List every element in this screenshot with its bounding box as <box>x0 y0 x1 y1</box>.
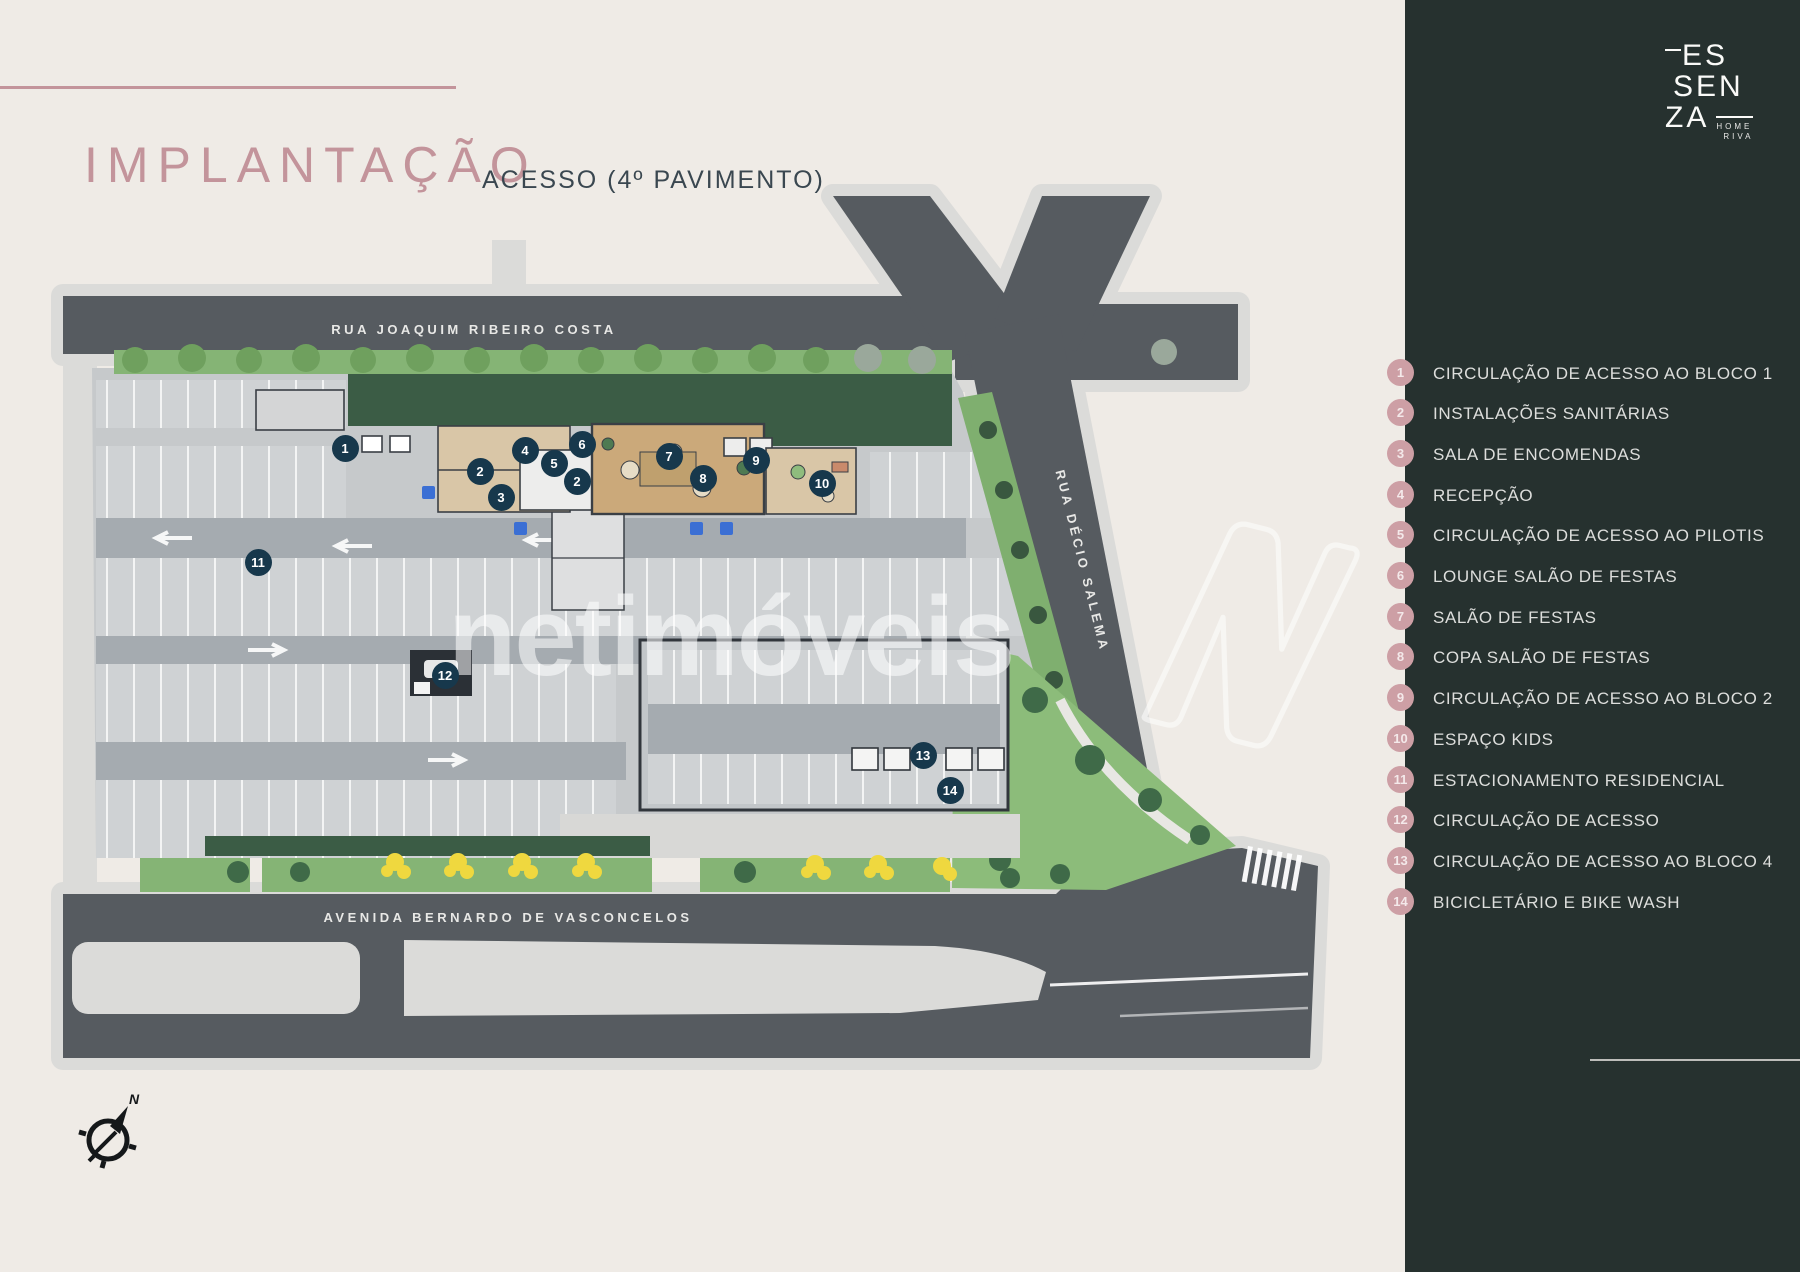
street-label-bottom: AVENIDA BERNARDO DE VASCONCELOS <box>323 910 692 925</box>
svg-text:N: N <box>129 1092 140 1107</box>
legend-badge: 9 <box>1387 684 1414 711</box>
legend-badge: 5 <box>1387 521 1414 548</box>
logo-dash-icon <box>1665 49 1681 51</box>
legend-label: CIRCULAÇÃO DE ACESSO AO BLOCO 1 <box>1433 364 1773 384</box>
netimoveis-watermark: netimóveis <box>448 572 1013 701</box>
legend-item-12: 12CIRCULAÇÃO DE ACESSO <box>1405 806 1800 833</box>
legend-badge: 11 <box>1387 766 1414 793</box>
legend-label: SALÃO DE FESTAS <box>1433 608 1597 628</box>
legend-badge: 3 <box>1387 440 1414 467</box>
legend-item-3: 3SALA DE ENCOMENDAS <box>1405 440 1800 467</box>
legend-label: CIRCULAÇÃO DE ACESSO AO PILOTIS <box>1433 526 1764 546</box>
legend-item-10: 10ESPAÇO KIDS <box>1405 725 1800 752</box>
legend-label: INSTALAÇÕES SANITÁRIAS <box>1433 404 1670 424</box>
plan-marker-9: 9 <box>743 447 770 474</box>
plan-marker-2: 2 <box>467 458 494 485</box>
legend-item-5: 5CIRCULAÇÃO DE ACESSO AO PILOTIS <box>1405 521 1800 548</box>
legend-label: ESTACIONAMENTO RESIDENCIAL <box>1433 771 1725 791</box>
legend-item-7: 7SALÃO DE FESTAS <box>1405 603 1800 630</box>
brand-logo: ES SEN ZA HOME RIVA <box>1655 40 1753 142</box>
plan-marker-12: 12 <box>432 662 459 689</box>
plan-marker-11: 11 <box>245 549 272 576</box>
legend-label: SALA DE ENCOMENDAS <box>1433 445 1641 465</box>
compass-north-icon: N <box>66 1092 156 1177</box>
legend-item-14: 14BICICLETÁRIO E BIKE WASH <box>1405 888 1800 915</box>
legend-badge: 12 <box>1387 806 1414 833</box>
legend-item-11: 11ESTACIONAMENTO RESIDENCIAL <box>1405 766 1800 793</box>
legend-label: ESPAÇO KIDS <box>1433 730 1554 750</box>
legend-item-6: 6LOUNGE SALÃO DE FESTAS <box>1405 562 1800 589</box>
legend-label: CIRCULAÇÃO DE ACESSO AO BLOCO 2 <box>1433 689 1773 709</box>
plan-marker-14: 14 <box>937 777 964 804</box>
legend-badge: 14 <box>1387 888 1414 915</box>
plan-marker-7: 7 <box>656 443 683 470</box>
legend-item-2: 2INSTALAÇÕES SANITÁRIAS <box>1405 399 1800 426</box>
plan-marker-3: 3 <box>488 484 515 511</box>
legend-badge: 4 <box>1387 481 1414 508</box>
plan-marker-13: 13 <box>910 742 937 769</box>
plan-marker-2: 2 <box>564 468 591 495</box>
plan-marker-4: 4 <box>512 437 539 464</box>
legend-label: BICICLETÁRIO E BIKE WASH <box>1433 893 1680 913</box>
legend-item-8: 8COPA SALÃO DE FESTAS <box>1405 643 1800 670</box>
plan-marker-10: 10 <box>809 470 836 497</box>
plan-marker-6: 6 <box>569 431 596 458</box>
street-label-top: RUA JOAQUIM RIBEIRO COSTA <box>331 322 616 337</box>
legend-item-4: 4RECEPÇÃO <box>1405 481 1800 508</box>
sidebar-rule <box>1590 1059 1800 1061</box>
legend-badge: 6 <box>1387 562 1414 589</box>
legend-label: COPA SALÃO DE FESTAS <box>1433 648 1650 668</box>
legend-badge: 2 <box>1387 399 1414 426</box>
legend-badge: 8 <box>1387 643 1414 670</box>
legend-item-9: 9CIRCULAÇÃO DE ACESSO AO BLOCO 2 <box>1405 684 1800 711</box>
legend-label: CIRCULAÇÃO DE ACESSO AO BLOCO 4 <box>1433 852 1773 872</box>
logo-tagline: HOME RIVA <box>1716 116 1753 142</box>
legend-badge: 13 <box>1387 847 1414 874</box>
page: IMPLANTAÇÃO ACESSO (4º PAVIMENTO) <box>0 0 1800 1272</box>
legend-badge: 7 <box>1387 603 1414 630</box>
legend-label: RECEPÇÃO <box>1433 486 1533 506</box>
plan-marker-1: 1 <box>332 435 359 462</box>
sidebar: ES SEN ZA HOME RIVA 1CIRCULAÇÃO DE ACESS… <box>1405 0 1800 1272</box>
legend-label: CIRCULAÇÃO DE ACESSO <box>1433 811 1659 831</box>
plan-marker-8: 8 <box>690 465 717 492</box>
legend-badge: 10 <box>1387 725 1414 752</box>
plan-marker-5: 5 <box>541 450 568 477</box>
legend-badge: 1 <box>1387 359 1414 386</box>
legend-label: LOUNGE SALÃO DE FESTAS <box>1433 567 1677 587</box>
legend-item-13: 13CIRCULAÇÃO DE ACESSO AO BLOCO 4 <box>1405 847 1800 874</box>
legend-item-1: 1CIRCULAÇÃO DE ACESSO AO BLOCO 1 <box>1405 359 1800 386</box>
